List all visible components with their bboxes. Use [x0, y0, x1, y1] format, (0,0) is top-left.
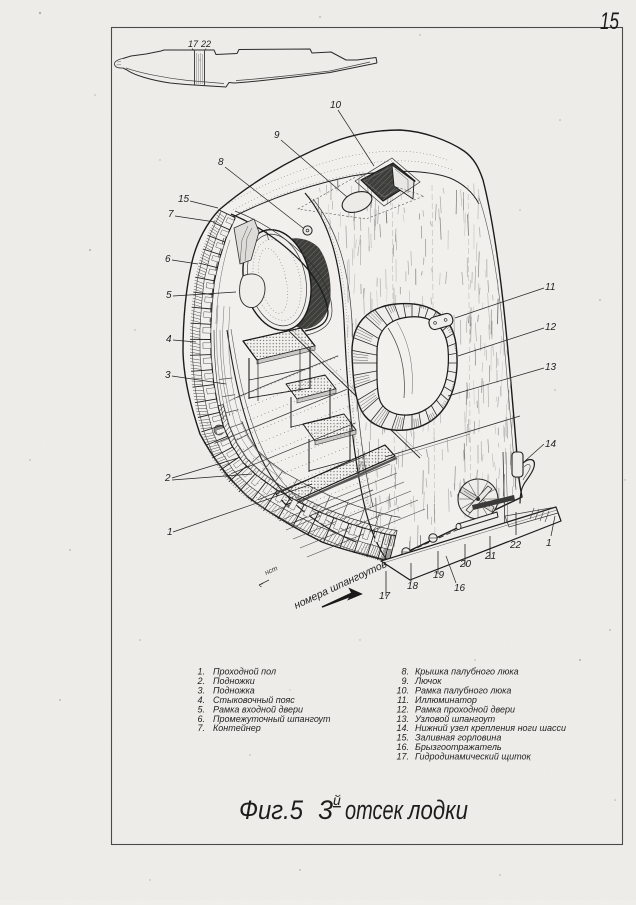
svg-text:15: 15: [600, 8, 619, 35]
svg-text:3: 3: [318, 795, 333, 825]
svg-text:12: 12: [545, 322, 557, 333]
svg-text:21: 21: [484, 551, 496, 562]
svg-text:13: 13: [545, 362, 557, 373]
svg-text:19: 19: [433, 570, 445, 581]
svg-text:8: 8: [218, 157, 224, 168]
svg-text:1: 1: [167, 527, 173, 538]
svg-text:16: 16: [454, 583, 466, 594]
svg-text:4: 4: [166, 334, 172, 345]
svg-text:2: 2: [164, 473, 171, 484]
svg-text:18: 18: [407, 581, 419, 592]
svg-text:3: 3: [165, 370, 171, 381]
svg-text:22: 22: [200, 39, 211, 49]
svg-text:1: 1: [546, 538, 552, 549]
svg-text:9: 9: [274, 130, 280, 141]
svg-text:Контейнер: Контейнер: [213, 723, 261, 733]
svg-text:17: 17: [188, 39, 199, 49]
svg-text:20: 20: [459, 559, 472, 570]
svg-text:6: 6: [165, 254, 171, 265]
svg-text:17.: 17.: [396, 752, 409, 762]
svg-text:14: 14: [545, 439, 557, 450]
svg-text:15: 15: [178, 194, 190, 205]
svg-text:7.: 7.: [197, 723, 205, 733]
svg-text:й: й: [333, 792, 341, 808]
svg-text:22: 22: [509, 540, 522, 551]
svg-text:7: 7: [168, 209, 174, 220]
svg-text:отсек: отсек: [345, 795, 404, 825]
svg-text:5: 5: [166, 290, 172, 301]
svg-text:10: 10: [330, 100, 342, 111]
svg-text:17: 17: [379, 591, 391, 602]
svg-text:11: 11: [545, 282, 555, 293]
svg-text:Гидродинамический щиток: Гидродинамический щиток: [415, 752, 531, 762]
svg-text:лодки: лодки: [406, 795, 468, 825]
svg-text:Фиг.5: Фиг.5: [239, 795, 304, 825]
